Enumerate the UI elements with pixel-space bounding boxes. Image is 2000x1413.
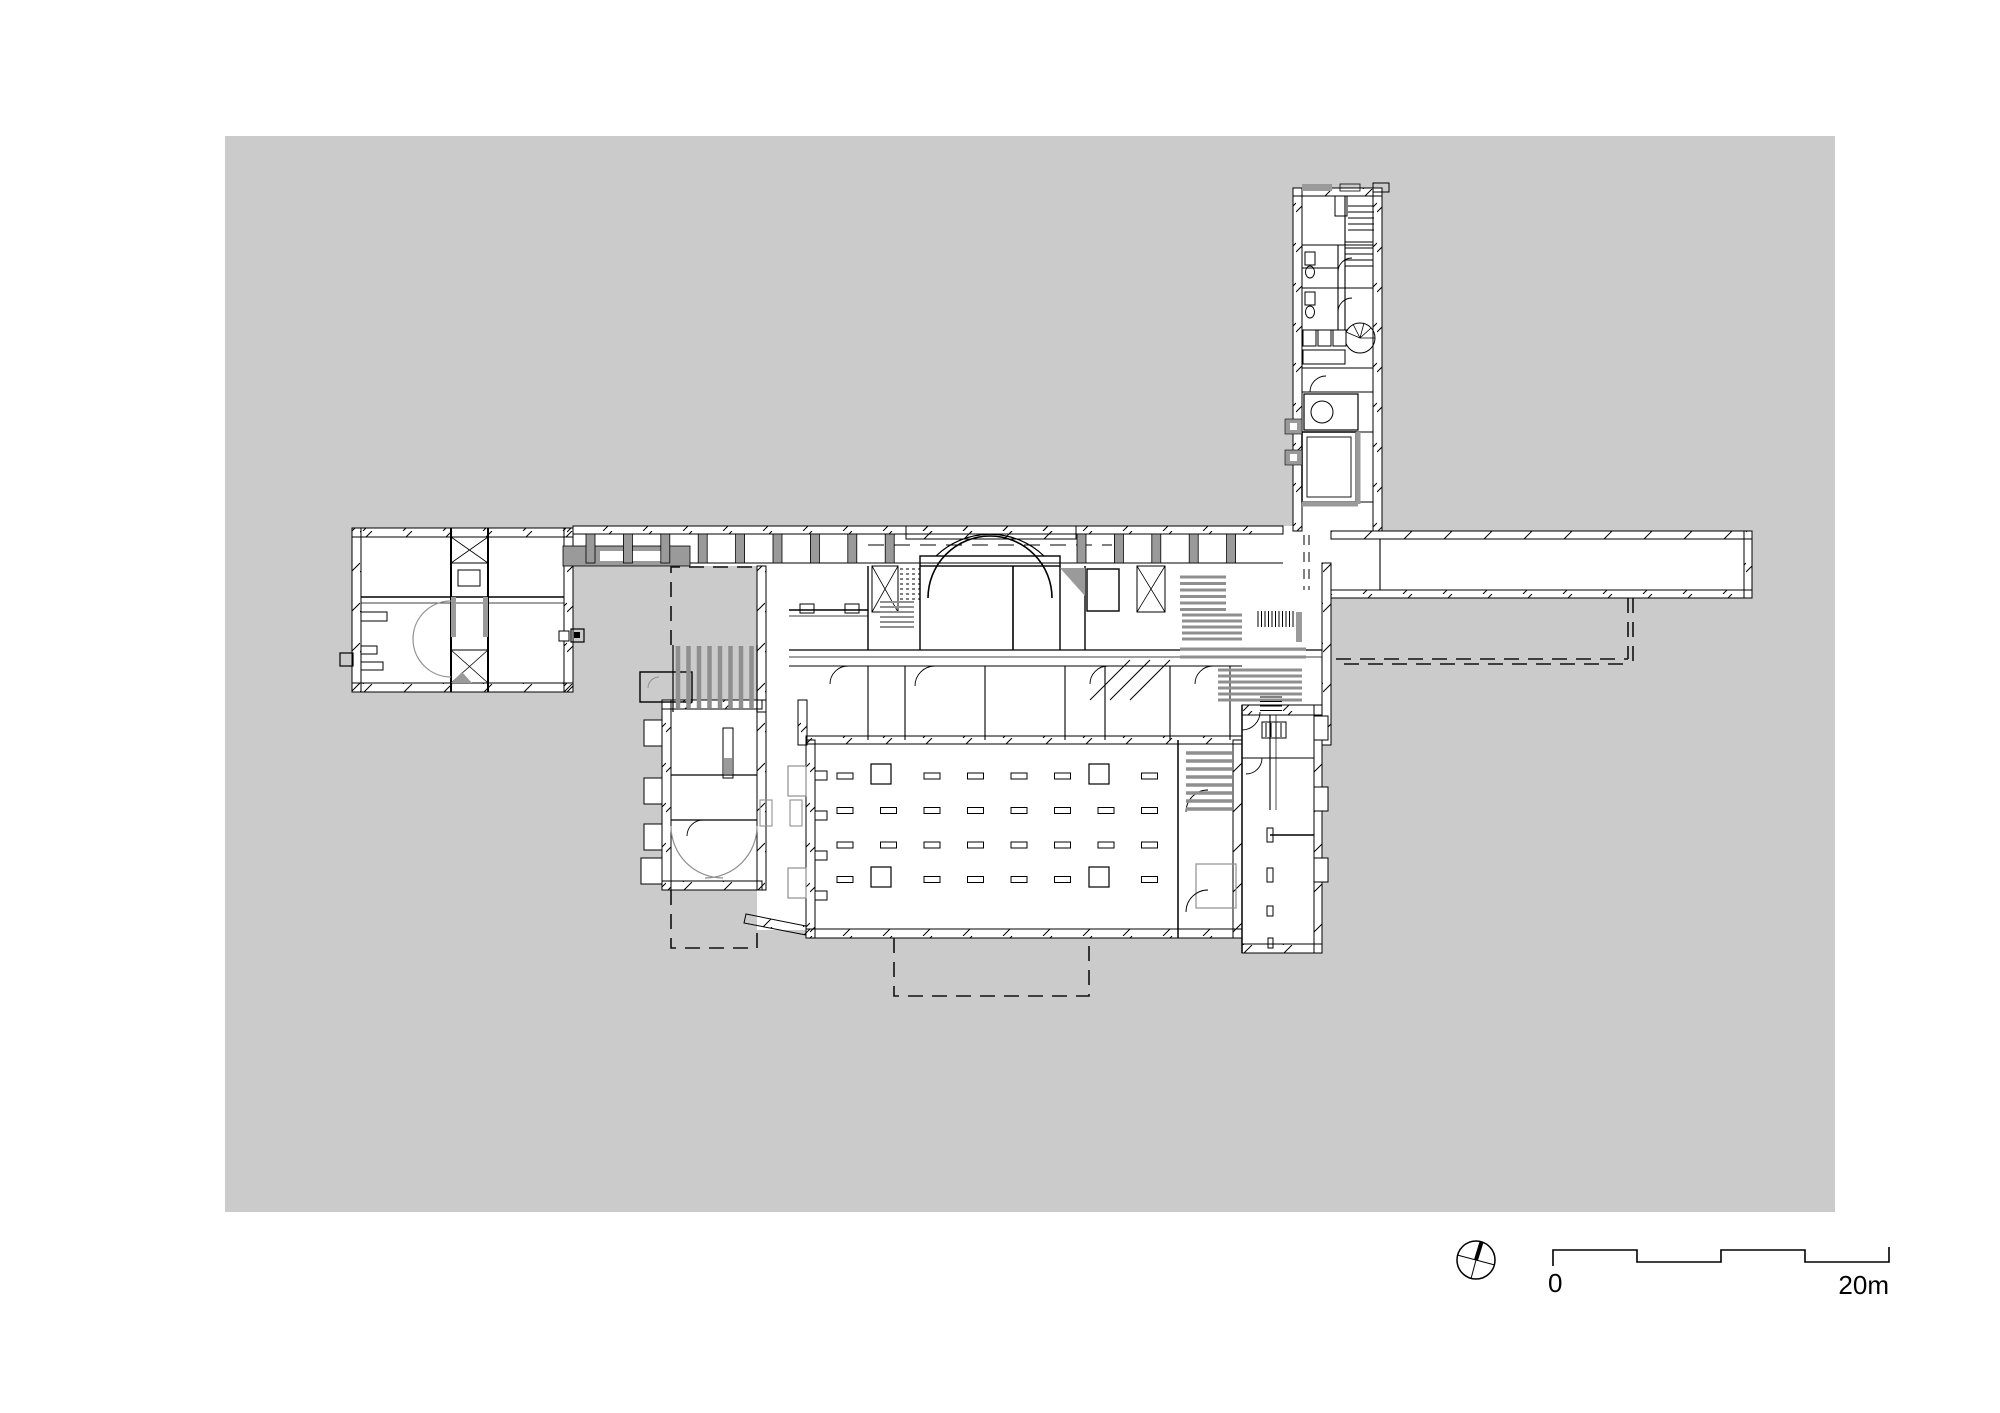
- colonnade-piers-west: [586, 534, 894, 563]
- west-wing-mass: [662, 700, 762, 890]
- wall: [806, 736, 1242, 744]
- wall: [662, 881, 762, 890]
- pier-core: [574, 632, 580, 638]
- wall: [352, 683, 573, 692]
- wall: [662, 700, 671, 890]
- wing-shelves: [1303, 330, 1346, 346]
- floor-plan-svg: 0 20m: [0, 0, 2000, 1413]
- drawing-sheet: 0 20m: [0, 0, 2000, 1413]
- shaft-gray: [451, 597, 456, 637]
- north-wing-mass: [1293, 188, 1382, 531]
- wall: [906, 526, 1076, 539]
- scale-bar: 0 20m: [1548, 1247, 1889, 1300]
- wall: [798, 700, 807, 745]
- wall: [1242, 944, 1322, 953]
- wall: [806, 929, 1242, 938]
- wall: [757, 566, 766, 712]
- stair-wall-gray: [1296, 612, 1302, 642]
- left-wing-buttresses: [641, 720, 662, 884]
- wall: [806, 740, 815, 938]
- compass-needle: [1476, 1242, 1482, 1260]
- pier-gray: [724, 758, 732, 774]
- post-block: [559, 631, 569, 641]
- wall: [1293, 188, 1302, 531]
- wall: [1744, 531, 1752, 598]
- scale-zero-label: 0: [1548, 1268, 1562, 1298]
- scale-end-label: 20m: [1838, 1270, 1889, 1300]
- wall: [1331, 531, 1752, 539]
- east-arm-mass: [1331, 531, 1752, 598]
- wall: [1331, 590, 1752, 598]
- shaft-gray: [483, 597, 488, 637]
- north-arrow: [1457, 1241, 1495, 1279]
- roof-gray: [1302, 184, 1332, 191]
- wall: [352, 528, 361, 692]
- wall: [1314, 705, 1322, 953]
- left-block-mass: [352, 528, 573, 692]
- wall: [352, 528, 573, 537]
- wall: [757, 700, 766, 890]
- attached-pier-core: [1290, 454, 1297, 461]
- attached-pier-core: [1290, 423, 1297, 430]
- wall: [1373, 188, 1382, 531]
- scale-bar-line: [1553, 1247, 1889, 1266]
